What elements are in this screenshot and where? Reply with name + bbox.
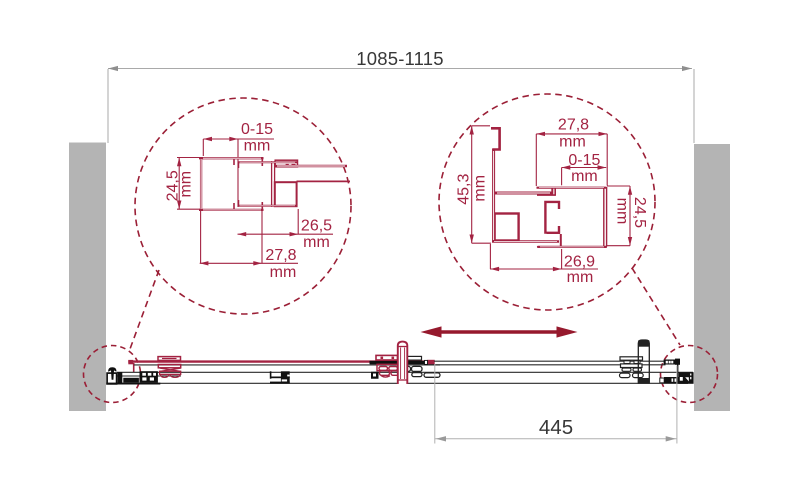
svg-text:26,5: 26,5 (301, 218, 332, 235)
svg-text:mm: mm (613, 198, 630, 225)
svg-text:1085-1115: 1085-1115 (356, 48, 444, 69)
svg-text:0-15: 0-15 (241, 121, 273, 138)
svg-text:0-15: 0-15 (568, 152, 600, 169)
svg-text:mm: mm (571, 168, 598, 185)
svg-text:24,5: 24,5 (631, 197, 648, 228)
svg-text:mm: mm (270, 264, 297, 281)
svg-text:445: 445 (539, 416, 573, 439)
svg-text:mm: mm (567, 269, 594, 286)
svg-text:26,9: 26,9 (564, 253, 595, 270)
svg-text:27,8: 27,8 (265, 247, 296, 264)
svg-text:mm: mm (244, 138, 271, 155)
svg-text:mm: mm (303, 234, 330, 251)
svg-text:mm: mm (559, 134, 586, 151)
svg-text:45,3: 45,3 (456, 174, 473, 205)
svg-text:27,8: 27,8 (558, 116, 589, 133)
svg-text:mm: mm (177, 171, 194, 198)
svg-text:mm: mm (472, 175, 489, 202)
